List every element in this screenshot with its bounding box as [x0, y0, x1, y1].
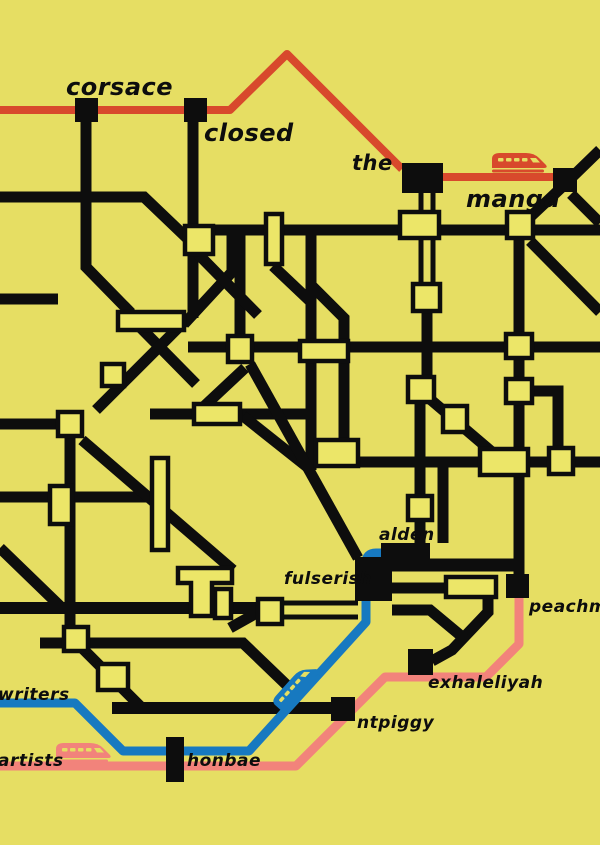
interchange-station: [300, 341, 348, 361]
station-peachmio: [506, 574, 529, 598]
station-honbae: [166, 737, 184, 782]
interchange-station: [413, 284, 440, 311]
interchange-station: [408, 377, 434, 402]
label-closed: closed: [204, 119, 294, 147]
label-exhaleliyah: exhaleliyah: [428, 673, 543, 693]
station-corsace: [75, 98, 98, 122]
interchange-station: [64, 627, 88, 651]
interchange-station: [266, 214, 282, 264]
interchange-station: [215, 589, 231, 618]
interchange-station: [118, 312, 184, 330]
label-alden: alden: [379, 525, 435, 545]
interchange-station: [443, 406, 467, 432]
station-exhaleliyah: [408, 649, 433, 675]
interchange-station: [185, 226, 213, 254]
label-artists: artists: [0, 751, 64, 771]
interchange-station: [194, 404, 240, 424]
label-ntpiggy: ntpiggy: [357, 713, 435, 733]
interchange-station: [480, 449, 528, 475]
label-peachmio: peachmio: [528, 597, 600, 617]
interchange-station: [228, 336, 252, 362]
interchange-station: [400, 212, 439, 238]
transit-map-poster: corsace closed the manga alden fulserish…: [0, 0, 600, 845]
label-honbae: honbae: [187, 751, 261, 771]
label-fulserish: fulserish: [284, 569, 372, 589]
interchange-station: [506, 334, 532, 358]
interchange-station: [316, 440, 358, 466]
station-the: [402, 163, 443, 193]
station-ntpiggy: [331, 697, 355, 721]
interchange-station: [408, 496, 432, 520]
label-writers: writers: [0, 685, 70, 705]
interchange-station: [102, 364, 124, 386]
interchange-station: [98, 664, 128, 690]
interchange-station: [549, 448, 573, 474]
interchange-station: [58, 412, 82, 436]
interchange-station: [50, 486, 72, 524]
label-the: the: [352, 151, 393, 175]
label-manga: manga: [466, 185, 560, 213]
interchange-station: [506, 379, 532, 403]
interchange-station: [446, 577, 496, 597]
interchange-station: [258, 599, 282, 624]
interchange-station: [152, 458, 168, 550]
label-corsace: corsace: [66, 73, 173, 101]
interchange-station: [507, 212, 533, 238]
